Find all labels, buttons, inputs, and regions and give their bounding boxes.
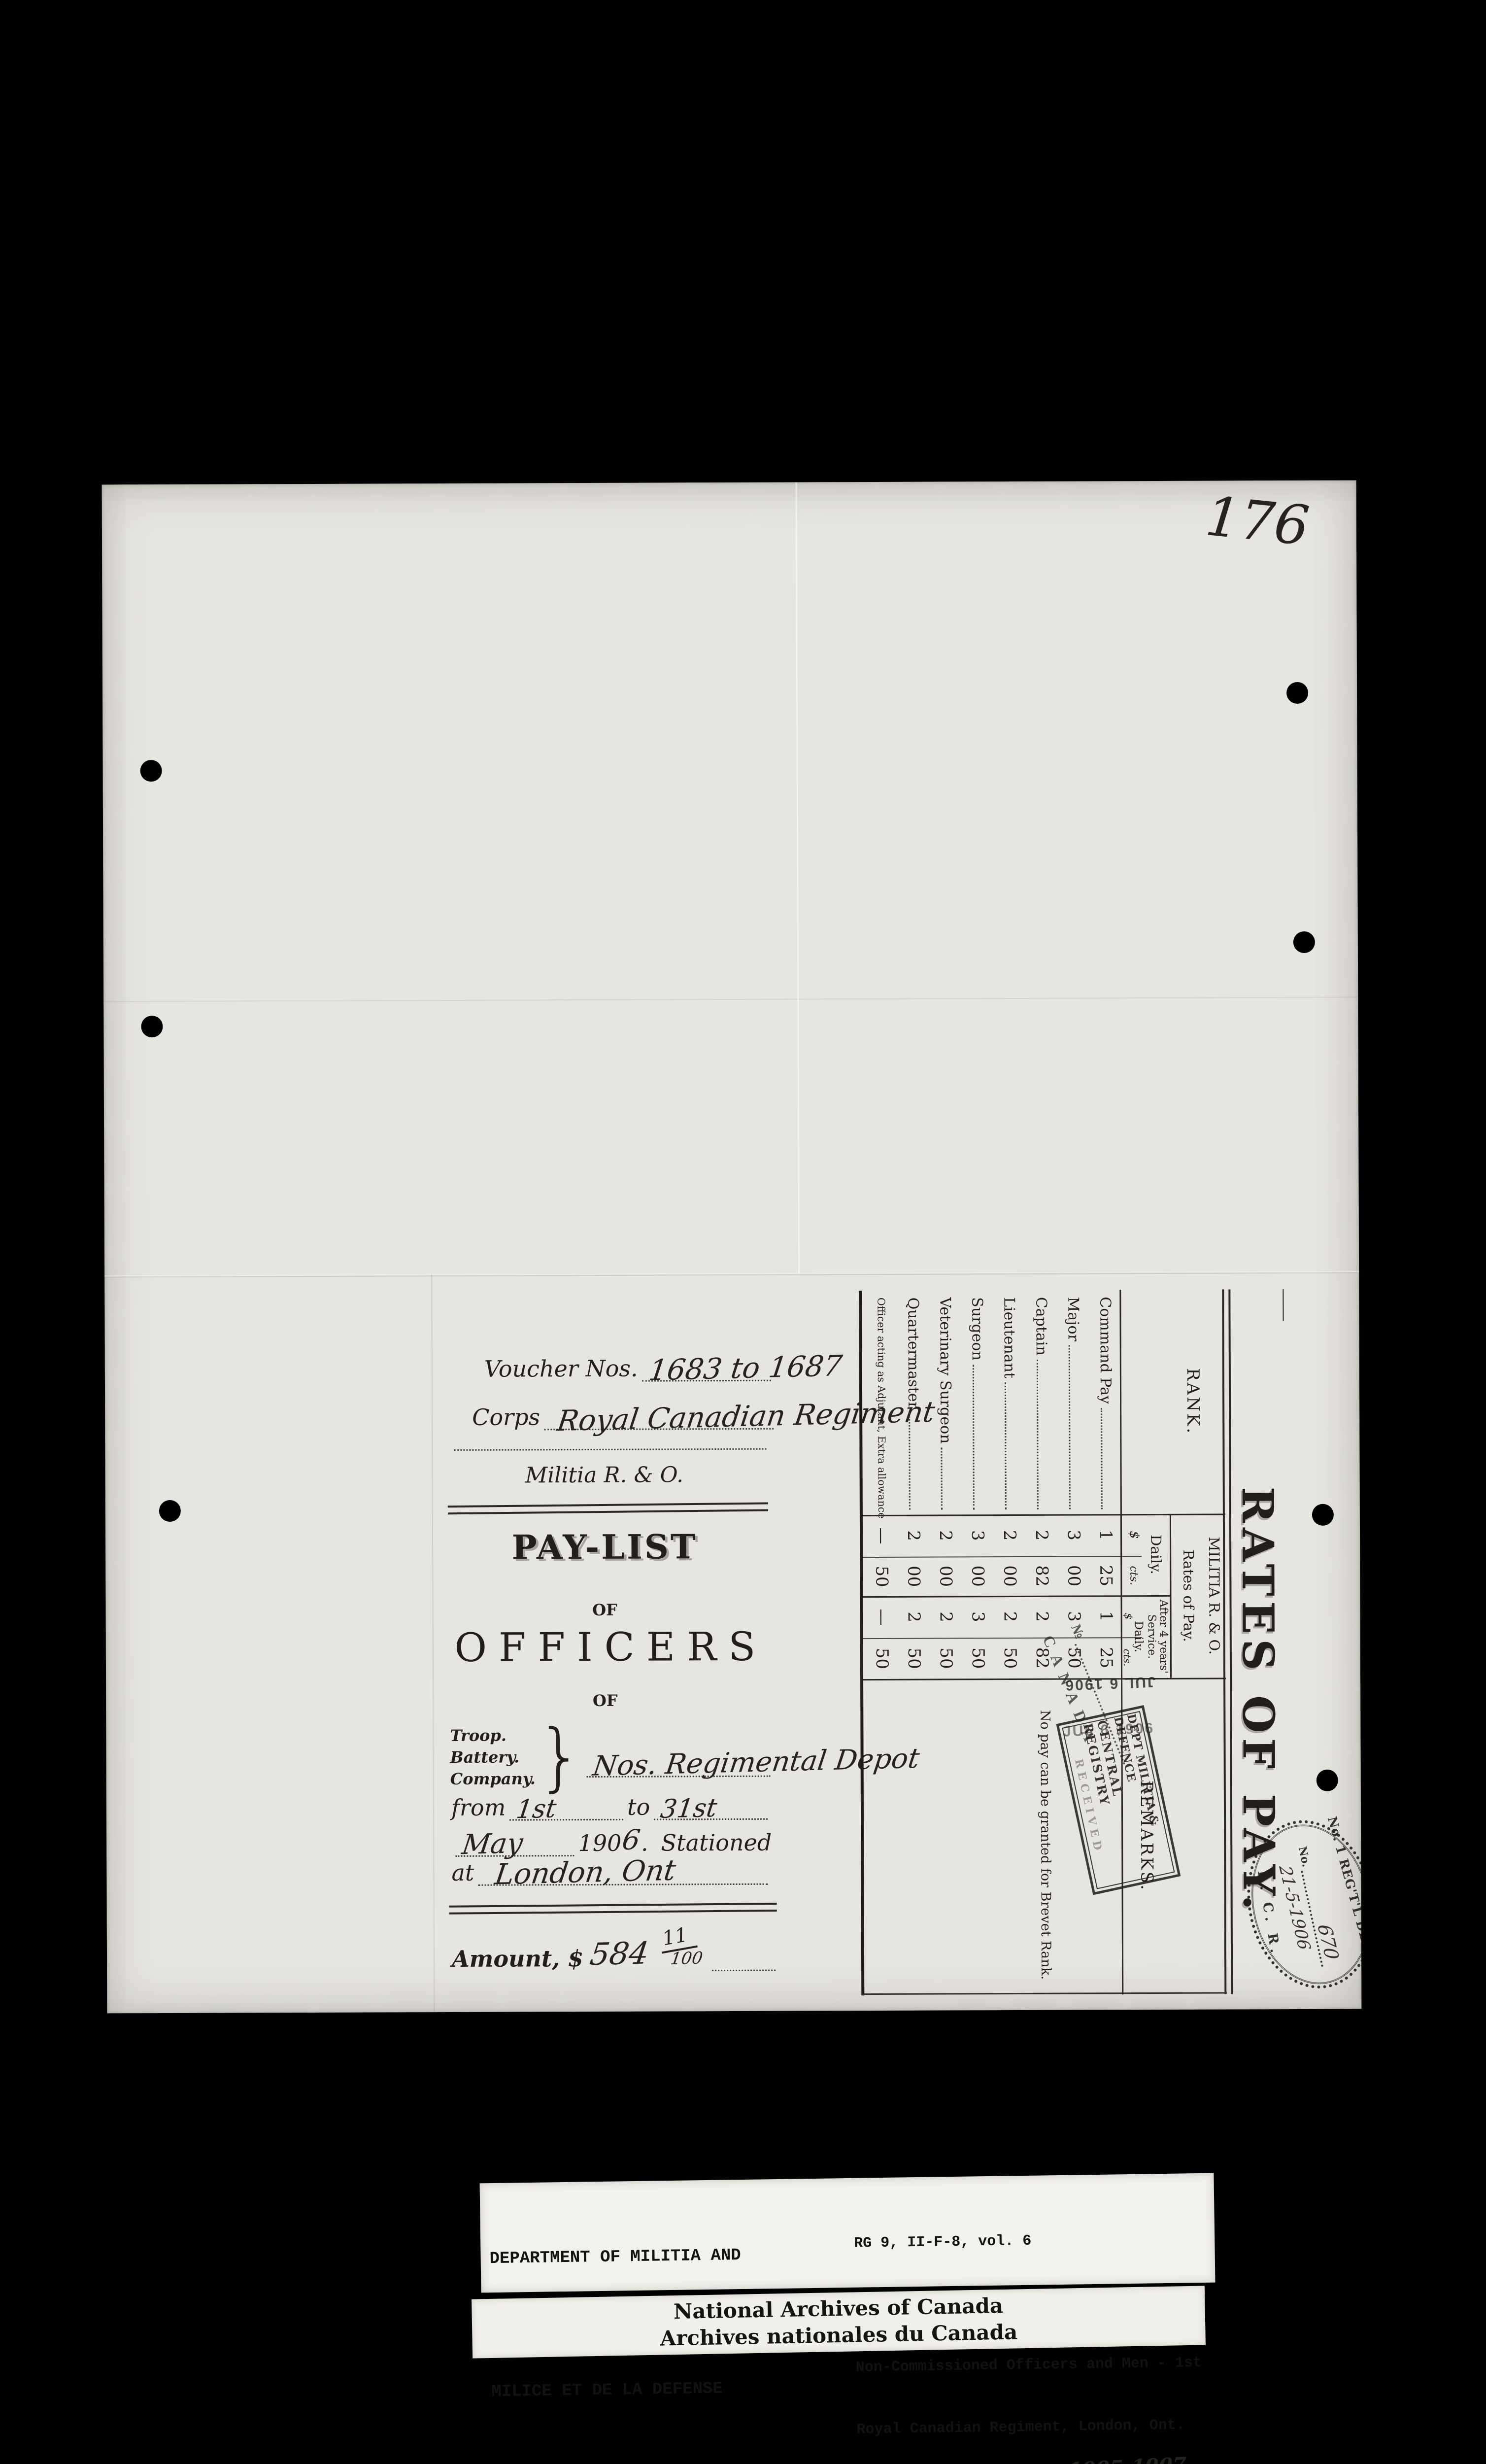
after-dollars: —: [872, 1596, 892, 1638]
month-line: May 190 6 . Stationed: [451, 1824, 772, 1857]
militia-header: MILITIA R. & O.: [1206, 1514, 1223, 1678]
received-date-stamp: JUL 6 1906: [1064, 1673, 1156, 1693]
faint-horizontal-crease: [103, 997, 1358, 1002]
from-to-line: from 1st to 31st: [451, 1793, 772, 1821]
punch-hole: [1293, 931, 1315, 953]
after-dollars: 1: [1096, 1595, 1116, 1637]
daily-dollars: 3: [1064, 1514, 1083, 1556]
rates-of-pay-header: Rates of Pay.: [1180, 1514, 1197, 1678]
at-value: London, Ont: [493, 1853, 678, 1891]
table-row: Surgeon 3 00 3 50: [961, 1290, 995, 1995]
dotted-leader: [973, 1365, 979, 1509]
month-value: May: [460, 1827, 525, 1861]
brace-glyph: }: [536, 1714, 583, 1800]
voucher-value: 1683 to 1687: [647, 1349, 844, 1387]
rank-cell: Major: [1064, 1290, 1082, 1514]
daily-dollars: 2: [904, 1515, 923, 1557]
rank-label: Command Pay: [1096, 1297, 1114, 1404]
daily-cents: 00: [936, 1556, 956, 1596]
amount-fraction: 11 100: [648, 1942, 708, 1971]
to-label: to: [627, 1794, 650, 1820]
record-group-years: 1905-1907: [1067, 2454, 1186, 2464]
rank-cell: Officer acting as Adjutant, Extra allowa…: [875, 1291, 888, 1515]
rates-panel-wrapper: RATES OF PAY. RANK. MILITIA R. & O. Rate…: [855, 1289, 1286, 1995]
from-label: from: [451, 1794, 506, 1821]
daily-dollars: 1: [1096, 1514, 1115, 1556]
after-service-header-1: After 4 years': [1157, 1595, 1170, 1678]
horizontal-fold-line: [104, 1271, 1359, 1278]
cents-label: cts.: [1121, 1637, 1133, 1678]
scan-canvas: 176 Voucher Nos. 1683 to 1687 Corps Roya…: [0, 0, 1486, 2464]
year-suffix: .: [641, 1830, 648, 1856]
militia-heading: Militia R. & O.: [432, 1462, 777, 1488]
cover-subject: OFFICERS: [433, 1624, 777, 1671]
unit-label-troop: Troop.: [450, 1724, 535, 1746]
daily-dollars: —: [872, 1515, 891, 1557]
after-dollars: 2: [904, 1596, 924, 1638]
unit-fill-line: Nos. Regimental Depot: [586, 1736, 771, 1777]
vertical-fold-line: [796, 482, 800, 1273]
amount-value: 584: [588, 1935, 651, 1972]
unit-labels: Troop. Battery. Company.: [450, 1724, 536, 1790]
cents-label: cts.: [1127, 1556, 1140, 1595]
daily-cents: 25: [1096, 1556, 1116, 1595]
year-prefix: 190: [578, 1830, 621, 1856]
punch-hole: [159, 1500, 181, 1522]
corps-fill-line: Royal Canadian Regiment: [544, 1422, 774, 1431]
dotted-leader: [909, 1413, 915, 1510]
rank-label: Surgeon: [968, 1297, 985, 1361]
daily-dollars: 2: [936, 1514, 955, 1556]
dotted-leader: [1037, 1360, 1044, 1509]
record-group-line1: RG 9, II-F-8, vol. 6: [854, 2228, 1200, 2254]
punch-hole: [1312, 1504, 1334, 1526]
page-number: 176: [1203, 484, 1312, 558]
voucher-label: Voucher Nos.: [484, 1355, 638, 1382]
table-row: Quartermaster 2 00 2 50: [897, 1291, 931, 1995]
rank-cell: Quartermaster: [904, 1291, 922, 1515]
daily-cents: 00: [904, 1557, 924, 1596]
voucher-line: Voucher Nos. 1683 to 1687: [484, 1355, 775, 1382]
table-row: Veterinary Surgeon 2 00 2 50: [929, 1290, 963, 1995]
table-bottom-rule: [859, 1291, 864, 1995]
rank-cell: Captain: [1032, 1290, 1050, 1514]
cover-title: PAY-LIST: [432, 1527, 777, 1568]
rank-cell: Command Pay: [1096, 1290, 1114, 1514]
after-cents: 50: [872, 1638, 892, 1679]
archive-caption-strip: DEPARTMENT OF MILITIA AND DEFENCE / MINI…: [480, 2173, 1216, 2293]
dotted-leader: [941, 1447, 947, 1509]
document-sheet: 176 Voucher Nos. 1683 to 1687 Corps Roya…: [102, 480, 1362, 2014]
department-caption-line1: DEPARTMENT OF MILITIA AND: [489, 2245, 741, 2270]
amount-fraction-denominator: 100: [669, 1949, 704, 1969]
stationed-label: Stationed: [661, 1829, 772, 1856]
at-label: at: [451, 1859, 474, 1886]
stationed-at-line: at London, Ont: [451, 1858, 772, 1886]
remarks-note: No pay can be granted for Brevet Rank.: [1037, 1710, 1053, 1980]
corps-label: Corps: [472, 1403, 540, 1430]
after-dollars: 2: [1000, 1596, 1020, 1638]
daily-dollars: 2: [1032, 1514, 1051, 1556]
dotted-leader: [1005, 1382, 1012, 1509]
after-service-header-2: Service.: [1145, 1595, 1158, 1678]
dotted-leader: [1101, 1408, 1108, 1509]
rank-label: Lieutenant: [1000, 1297, 1018, 1378]
after-cents: 50: [936, 1638, 956, 1678]
rank-header: RANK.: [1182, 1290, 1203, 1514]
daily-cents: 82: [1032, 1556, 1052, 1596]
dollar-label: $: [1121, 1595, 1134, 1637]
daily-cents: 00: [1000, 1556, 1020, 1596]
rank-label: Officer acting as Adjutant, Extra allowa…: [875, 1298, 888, 1519]
rank-label: Major: [1064, 1297, 1081, 1341]
unit-row: Troop. Battery. Company. } Nos. Regiment…: [450, 1713, 771, 1800]
rank-cell: Veterinary Surgeon: [936, 1290, 954, 1514]
punch-hole: [140, 760, 162, 782]
daily-cents: 00: [1064, 1556, 1084, 1596]
year-value: 6: [620, 1824, 642, 1856]
record-group-line4: Royal Canadian Regiment, London, Ont.: [856, 2415, 1203, 2440]
daily-dollars: 3: [968, 1514, 987, 1556]
daily-header: Daily.: [1148, 1514, 1165, 1595]
unit-label-battery: Battery.: [450, 1746, 536, 1768]
of-word-lower: OF: [433, 1691, 777, 1711]
after-dollars: 3: [968, 1596, 988, 1638]
dollar-label: $: [1127, 1514, 1142, 1556]
blank-dotted-line: [450, 1442, 770, 1451]
voucher-fill-line: 1683 to 1687: [642, 1374, 771, 1382]
group-header-rule: [1170, 1514, 1172, 1678]
of-word-upper: OF: [433, 1600, 777, 1620]
militia-header-rule: [1283, 1289, 1283, 1321]
rates-of-pay-table: RATES OF PAY. RANK. MILITIA R. & O. Rate…: [855, 1289, 1286, 1995]
daily-dollars: 2: [1000, 1514, 1019, 1556]
rank-cell: Lieutenant: [1000, 1290, 1018, 1514]
dotted-leader: [1069, 1345, 1076, 1509]
title-double-rule: [1222, 1289, 1233, 1994]
to-value: 31st: [659, 1793, 719, 1824]
double-rule: [449, 1903, 777, 1915]
unit-label-company: Company.: [450, 1768, 536, 1790]
rank-label: Captain: [1032, 1297, 1049, 1356]
from-value: 1st: [514, 1794, 558, 1824]
daily-cents: 00: [968, 1556, 988, 1596]
record-group-line3: Non-Commissioned Officers and Men - 1st: [856, 2353, 1202, 2378]
after-cents: 50: [1000, 1638, 1020, 1678]
department-caption-line3: MILICE ET DE LA DEFENSE: [491, 2378, 743, 2403]
archives-banner: National Archives of Canada Archives nat…: [472, 2289, 1206, 2355]
rank-label: Veterinary Surgeon: [936, 1297, 954, 1443]
after-cents: 50: [968, 1638, 988, 1678]
table-row: Lieutenant 2 00 2 50: [993, 1290, 1027, 1995]
punch-hole: [1317, 1770, 1338, 1791]
after-cents: 50: [904, 1638, 924, 1679]
after-dollars: 2: [936, 1596, 956, 1638]
punch-hole: [1286, 682, 1308, 704]
punch-hole: [141, 1016, 163, 1037]
after-dollars: 2: [1032, 1596, 1052, 1638]
daily-cents: 50: [872, 1557, 892, 1596]
corps-line: Corps Royal Canadian Regiment: [472, 1403, 777, 1431]
amount-label: Amount, $: [452, 1945, 583, 1972]
amount-line: Amount, $ 584 11 100: [452, 1935, 779, 1972]
rank-cell: Surgeon: [968, 1290, 986, 1514]
rank-label: Quartermaster: [904, 1298, 922, 1409]
double-rule: [448, 1502, 768, 1514]
table-row: Officer acting as Adjutant, Extra allowa…: [865, 1291, 899, 1995]
